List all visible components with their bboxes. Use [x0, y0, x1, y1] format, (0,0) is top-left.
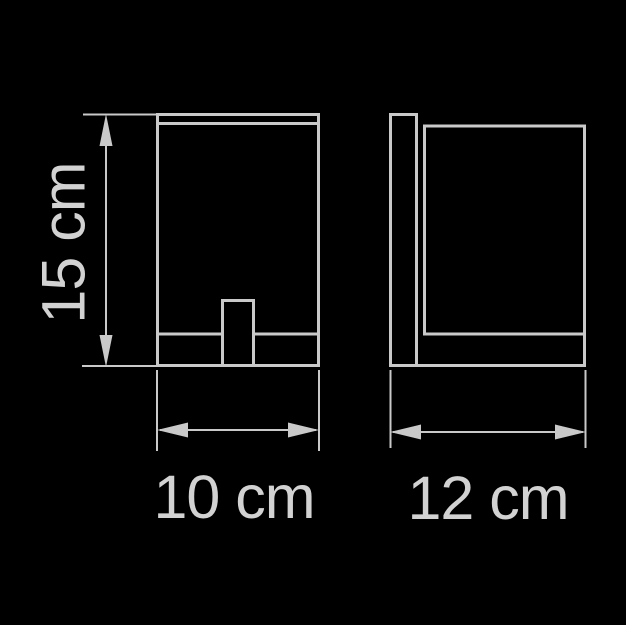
front-outline [158, 115, 319, 366]
diagram-svg: 15 cm 10 cm [0, 0, 626, 625]
height-dimension: 15 cm [30, 114, 161, 367]
front-view [156, 115, 319, 367]
arrow-left-icon [157, 423, 188, 438]
front-tab [223, 301, 254, 367]
side-body-outline [425, 126, 585, 365]
arrow-right-icon [555, 425, 586, 440]
width-dimension-label: 10 cm [153, 463, 314, 531]
width-dimension: 10 cm [153, 370, 319, 531]
height-dimension-label: 15 cm [30, 162, 98, 323]
arrow-right-icon [288, 423, 319, 438]
side-view [389, 115, 586, 366]
depth-dimension: 12 cm [390, 370, 586, 532]
arrow-up-icon [100, 114, 113, 146]
arrow-down-icon [100, 335, 113, 367]
side-backplate [391, 115, 417, 366]
arrow-left-icon [390, 425, 421, 440]
depth-dimension-label: 12 cm [407, 464, 568, 532]
dimension-diagram: 15 cm 10 cm [0, 0, 626, 625]
